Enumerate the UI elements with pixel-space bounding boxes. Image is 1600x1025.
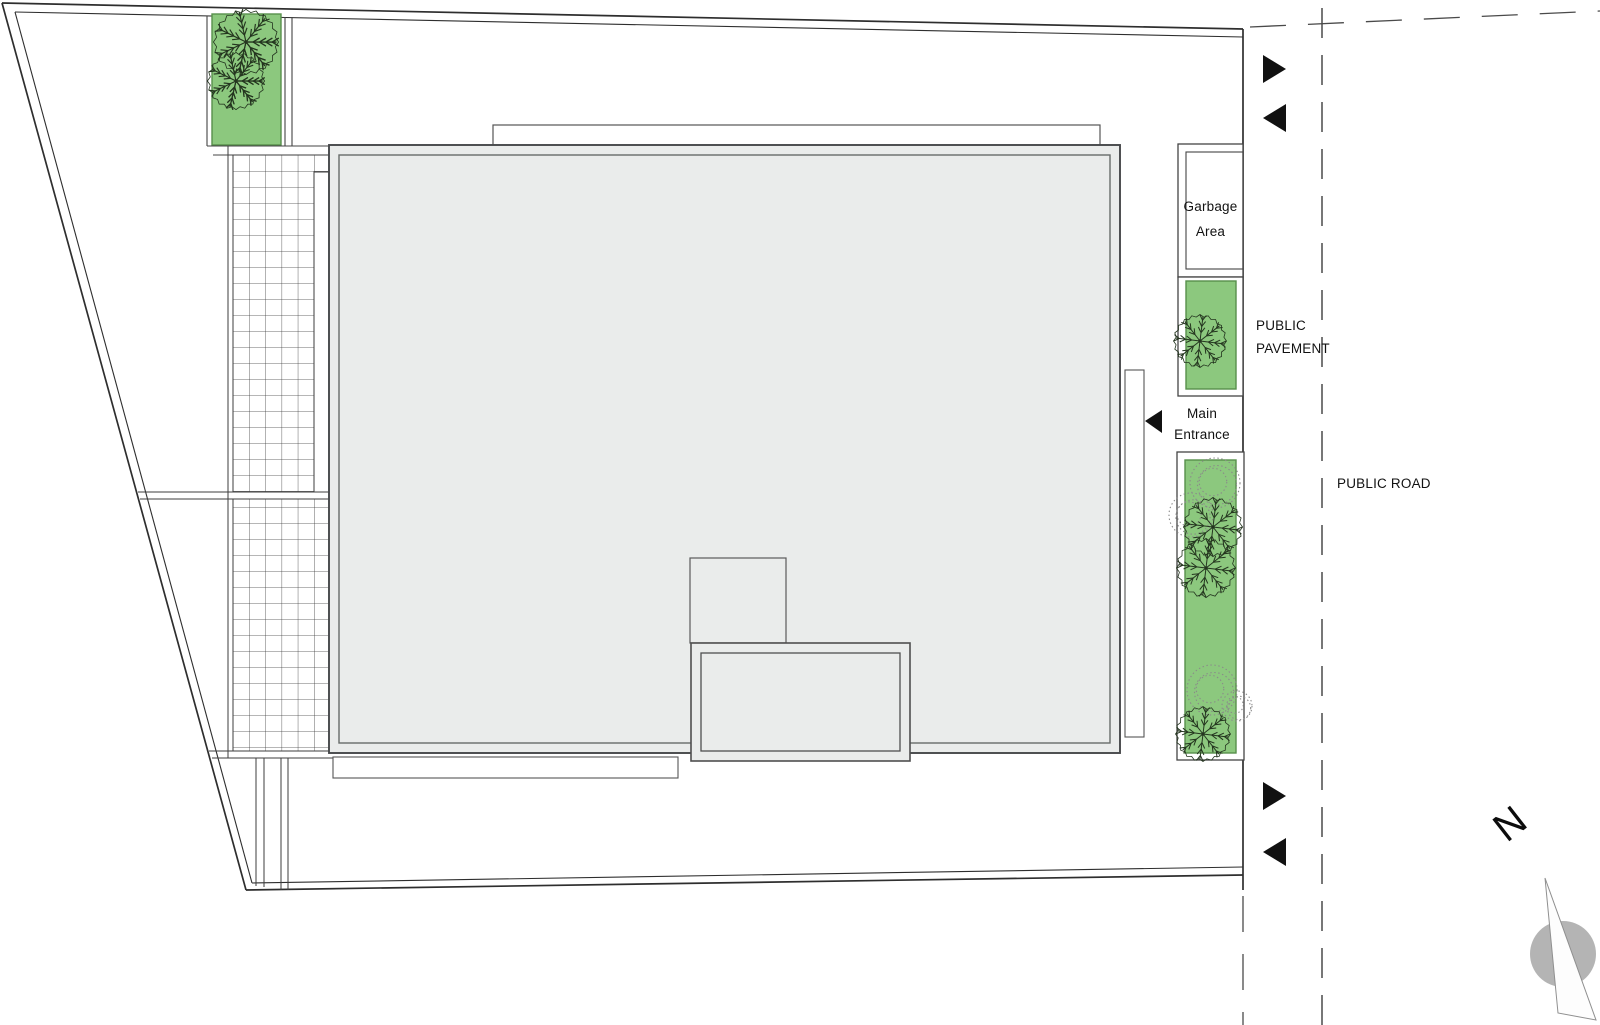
porch-outer (691, 643, 910, 761)
planting-bed-topleft (207, 14, 330, 155)
paved-courtyard-lower (233, 499, 329, 751)
entrance-walk-strip (1125, 370, 1144, 737)
site-plan-canvas: Garbage Area PUBLIC PAVEMENT Main Entran… (0, 0, 1600, 1025)
building (329, 125, 1144, 778)
traffic-arrow-bottom-left (1263, 838, 1286, 866)
traffic-arrow-bottom-right (1263, 782, 1286, 810)
public-pavement-label: PUBLIC PAVEMENT (1256, 314, 1330, 360)
paved-courtyard-upper (233, 155, 329, 492)
roof-overhang-outline (493, 125, 1100, 146)
plot-line-top-extension (1250, 11, 1600, 27)
traffic-arrow-top-right (1263, 55, 1286, 83)
traffic-arrow-top-left (1263, 104, 1286, 132)
building-annex-square (690, 558, 786, 643)
main-entrance-label: Main Entrance (1156, 403, 1248, 445)
yard-divider-wall (138, 492, 329, 499)
site-plan-drawing (0, 0, 1600, 1025)
north-compass (1530, 878, 1596, 1020)
tree-road-strip-1 (1183, 497, 1242, 556)
garbage-area-label: Garbage Area (1178, 194, 1243, 244)
side-walkway (256, 758, 288, 890)
tree-road-strip-2 (1176, 538, 1235, 597)
tree-pavement-strip (1174, 315, 1227, 368)
tree-road-strip-3 (1176, 707, 1231, 762)
paved-courtyard (138, 146, 333, 890)
public-road-label: PUBLIC ROAD (1337, 476, 1431, 491)
road-dashed-lines (1243, 8, 1600, 1025)
building-base-strip (333, 757, 678, 778)
